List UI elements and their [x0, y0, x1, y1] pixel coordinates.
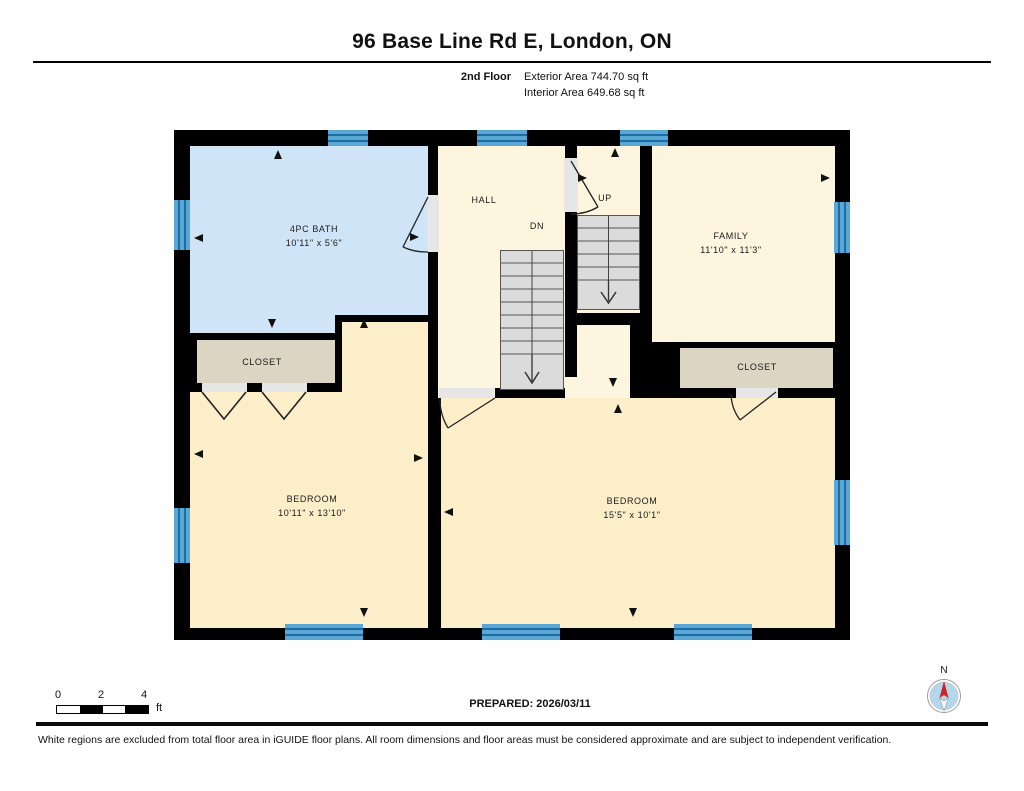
compass-north-label: N: [940, 665, 947, 676]
room-name: BEDROOM: [603, 495, 660, 509]
scale-unit: ft: [156, 702, 162, 714]
room-name: BEDROOM: [278, 493, 346, 507]
room-label-bedroom-left: BEDROOM 10'11" x 13'10": [278, 493, 346, 521]
opening-arrow-icon: [268, 319, 276, 328]
opening-arrow-icon: [821, 174, 830, 182]
room-label-bedroom-right: BEDROOM 15'5" x 10'1": [603, 495, 660, 523]
opening-arrow-icon: [274, 150, 282, 159]
opening-arrow-icon: [360, 319, 368, 328]
opening-arrow-icon: [609, 378, 617, 387]
door-swing-overlay: [174, 130, 850, 640]
stairs-down-label: DN: [530, 220, 544, 234]
room-dims: 10'11" x 13'10": [278, 507, 346, 521]
room-name: 4PC BATH: [286, 223, 343, 237]
page-title: 96 Base Line Rd E, London, ON: [0, 30, 1024, 54]
opening-arrow-icon: [629, 608, 637, 617]
room-dims: 10'11" x 5'6": [286, 237, 343, 251]
scale-tick: 2: [98, 689, 104, 701]
opening-arrow-icon: [614, 404, 622, 413]
scale-tick: 4: [141, 689, 147, 701]
footer-divider: [36, 722, 988, 726]
room-name: FAMILY: [700, 230, 761, 244]
floor-plan-page: 96 Base Line Rd E, London, ON 2nd Floor …: [0, 0, 1024, 791]
room-name: HALL: [472, 194, 497, 208]
floor-plan: 4PC BATH 10'11" x 5'6" HALL DN UP FAMILY…: [174, 130, 850, 640]
floor-label: 2nd Floor: [0, 71, 511, 83]
opening-arrow-icon: [410, 233, 419, 241]
room-label-closet-right: CLOSET: [737, 361, 777, 375]
opening-arrow-icon: [194, 234, 203, 242]
header-divider: [33, 61, 991, 63]
scale-tick: 0: [55, 689, 61, 701]
room-label-hall: HALL: [472, 194, 497, 208]
prepared-date: PREPARED: 2026/03/11: [469, 698, 590, 710]
stairs-up-label: UP: [598, 192, 612, 206]
opening-arrow-icon: [444, 508, 453, 516]
disclaimer-text: White regions are excluded from total fl…: [38, 734, 988, 746]
room-dims: 15'5" x 10'1": [603, 509, 660, 523]
scale-bar: 0 2 4 ft: [56, 689, 226, 719]
opening-arrow-icon: [611, 148, 619, 157]
interior-area: Interior Area 649.68 sq ft: [524, 87, 644, 99]
room-dims: 11'10" x 11'3": [700, 244, 761, 258]
exterior-area: Exterior Area 744.70 sq ft: [524, 71, 648, 83]
opening-arrow-icon: [194, 450, 203, 458]
compass-icon: N: [924, 660, 964, 718]
opening-arrow-icon: [360, 608, 368, 617]
room-label-bath: 4PC BATH 10'11" x 5'6": [286, 223, 343, 251]
room-label-family: FAMILY 11'10" x 11'3": [700, 230, 761, 258]
opening-arrow-icon: [578, 174, 587, 182]
opening-arrow-icon: [414, 454, 423, 462]
room-label-closet-left: CLOSET: [242, 356, 282, 370]
scale-bar-segments: [56, 705, 149, 714]
